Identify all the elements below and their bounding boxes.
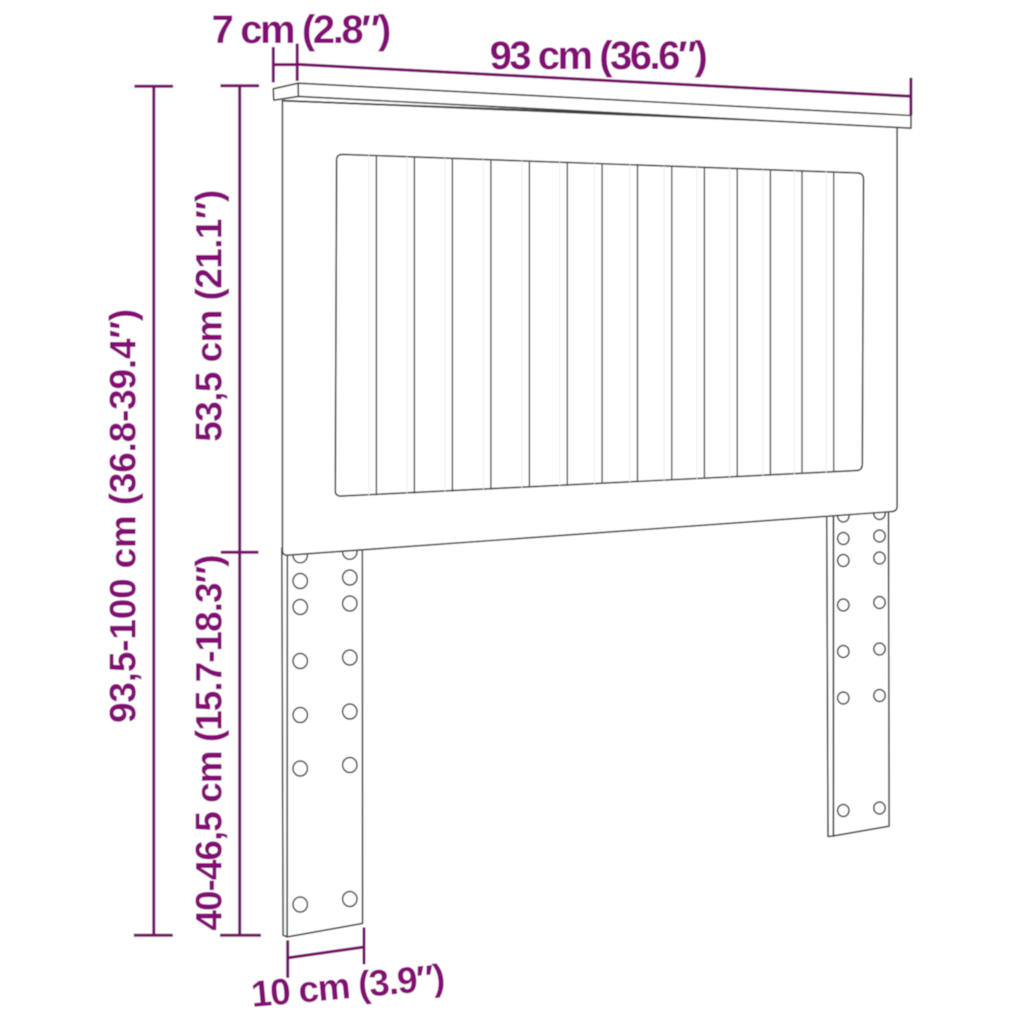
svg-text:7 cm (2.8″): 7 cm (2.8″) (212, 8, 390, 52)
svg-text:40-46,5 cm (15.7-18.3″): 40-46,5 cm (15.7-18.3″) (189, 555, 230, 930)
svg-text:53,5 cm (21.1″): 53,5 cm (21.1″) (189, 190, 230, 441)
svg-text:93 cm (36.6″): 93 cm (36.6″) (490, 34, 707, 78)
svg-text:93,5-100 cm (36.8-39.4″): 93,5-100 cm (36.8-39.4″) (103, 309, 144, 723)
